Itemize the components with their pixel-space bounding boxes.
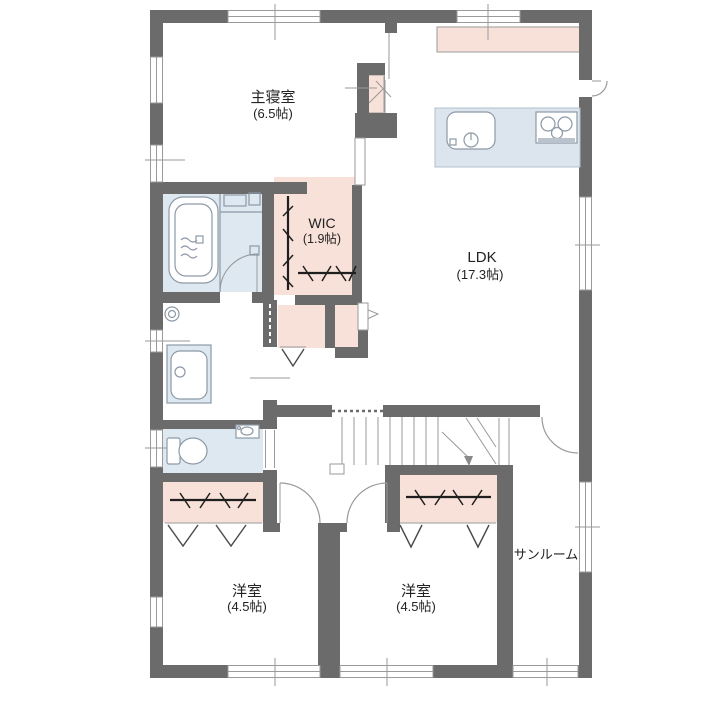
room-fills: [163, 27, 580, 523]
window-icon: [575, 482, 600, 572]
door-swing-icon: [542, 417, 578, 453]
bath-door-gap: [220, 292, 252, 303]
door-swing-icon: [592, 81, 607, 96]
bedroom-ldk-opening: [355, 138, 365, 185]
kitchen-sink-icon: [447, 112, 495, 149]
label-ldk: LDK: [467, 249, 496, 266]
toilet-icon: [167, 438, 207, 464]
stair-side-opening: [497, 418, 513, 465]
bifold-door-icon: [168, 525, 198, 546]
window-icon: [575, 197, 600, 290]
closet-left-room: [163, 482, 263, 523]
window-icon: [340, 658, 433, 686]
bathtub-icon: [169, 197, 218, 283]
stove-icon: [536, 112, 577, 143]
label-western-left: 洋室: [232, 583, 262, 600]
window-icon: [513, 658, 578, 686]
label-sunroom: サンルーム: [514, 547, 579, 562]
label-western-center-size: (4.5帖): [396, 599, 436, 614]
wic-door-gap: [278, 295, 295, 305]
corner-sink-icon: [236, 425, 259, 438]
storage-opening: [358, 303, 368, 330]
window-icon: [228, 658, 320, 686]
label-master-bedroom: 主寝室: [250, 88, 295, 106]
floor-plan-drawing: 主寝室 (6.5帖) WIC (1.9帖) LDK (17.3帖) 洋室 (4.…: [0, 0, 725, 725]
ldk-storage: [335, 303, 358, 347]
window-icon: [228, 4, 320, 40]
bifold-door-icon: [282, 349, 304, 366]
floor-plan: 主寝室 (6.5帖) WIC (1.9帖) LDK (17.3帖) 洋室 (4.…: [0, 0, 725, 725]
door-swing-icon: [347, 483, 387, 523]
window-icon: [151, 57, 163, 103]
kitchen-island: [435, 108, 580, 167]
kitchen-back-counter: [437, 27, 580, 52]
washer-drain-icon: [165, 307, 179, 321]
label-ldk-size: (17.3帖): [457, 267, 504, 282]
label-western-center: 洋室: [401, 583, 431, 600]
label-western-left-size: (4.5帖): [227, 599, 267, 614]
label-master-bedroom-size: (6.5帖): [253, 106, 293, 121]
door-swing-icon: [280, 483, 320, 523]
hall-storage: [278, 303, 325, 348]
back-door-gap: [579, 80, 592, 97]
bifold-door-icon: [467, 525, 489, 547]
bifold-door-icon: [400, 525, 422, 547]
label-wic: WIC: [308, 215, 335, 231]
toilet-door: [266, 430, 275, 468]
stairs-down-arrow-icon: [442, 432, 473, 466]
window-icon: [151, 597, 163, 627]
stair-handrail: [332, 405, 383, 417]
window-icon: [145, 145, 185, 182]
vanity-sink-icon: [167, 345, 211, 403]
bifold-door-icon: [216, 525, 246, 546]
label-wic-size: (1.9帖): [303, 231, 341, 246]
stair-step: [330, 464, 344, 474]
sunroom-door-gap: [540, 405, 578, 417]
